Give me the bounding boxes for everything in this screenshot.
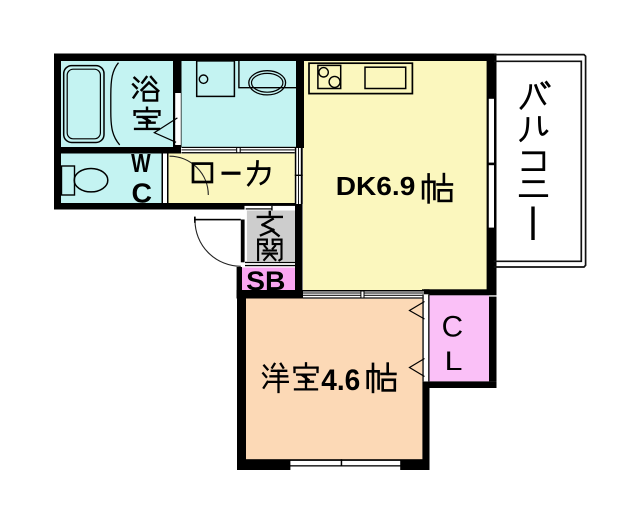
- svg-text:C: C: [132, 178, 153, 209]
- svg-text:DK6.9: DK6.9: [336, 173, 416, 201]
- svg-text:C: C: [442, 310, 464, 343]
- svg-text:L: L: [445, 346, 463, 376]
- svg-text:W: W: [131, 150, 151, 178]
- svg-text:SB: SB: [246, 266, 285, 296]
- svg-text:4.6: 4.6: [321, 364, 360, 397]
